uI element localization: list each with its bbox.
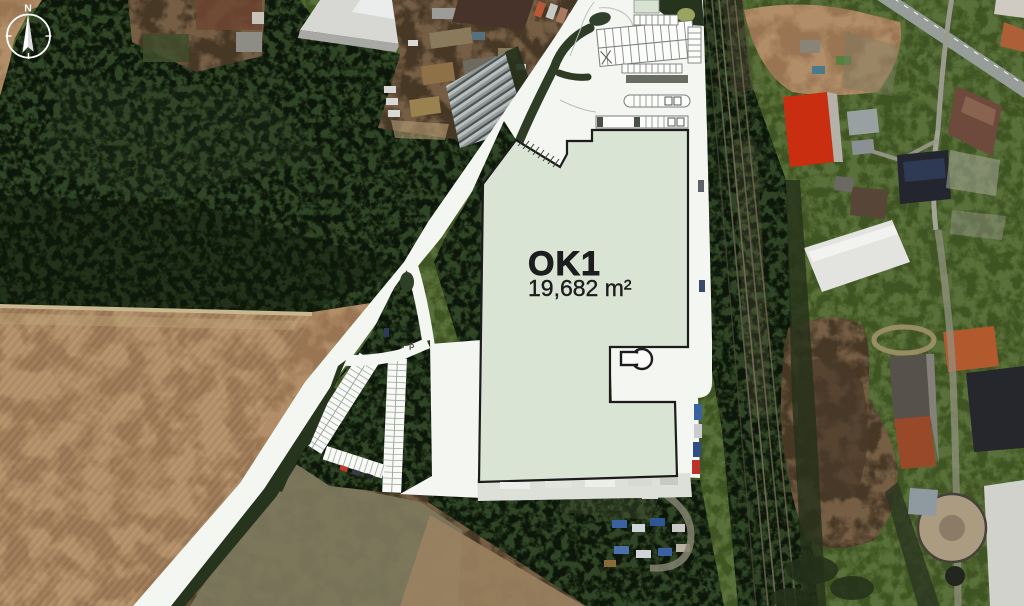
svg-text:19,682 m²: 19,682 m²	[528, 275, 632, 301]
svg-text:N: N	[24, 3, 32, 15]
svg-text:P: P	[409, 343, 415, 352]
